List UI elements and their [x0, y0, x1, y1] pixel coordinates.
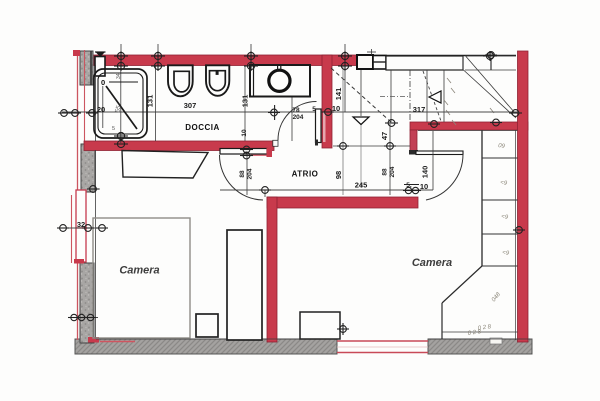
svg-text:131: 131 — [241, 95, 250, 108]
svg-text:307: 307 — [184, 101, 197, 110]
svg-text:204: 204 — [247, 168, 254, 179]
svg-text:20: 20 — [97, 105, 105, 114]
svg-text:34: 34 — [116, 73, 122, 79]
svg-text:88: 88 — [239, 170, 246, 178]
svg-text:0: 0 — [101, 78, 105, 87]
svg-text:10: 10 — [241, 129, 248, 137]
svg-text:204: 204 — [293, 114, 304, 121]
svg-text:5: 5 — [112, 126, 115, 132]
svg-text:DOCCIA: DOCCIA — [185, 123, 220, 132]
svg-text:245: 245 — [355, 181, 368, 190]
svg-text:98: 98 — [334, 171, 343, 179]
svg-text:Camera: Camera — [412, 257, 452, 269]
svg-text:317: 317 — [413, 105, 426, 114]
svg-text:78: 78 — [292, 107, 300, 114]
svg-text:140: 140 — [421, 166, 430, 179]
svg-text:131: 131 — [146, 95, 155, 108]
svg-text:88: 88 — [382, 168, 389, 176]
svg-text:10: 10 — [420, 182, 428, 191]
svg-text:141: 141 — [334, 88, 343, 101]
svg-text:5: 5 — [312, 106, 316, 113]
svg-text:204: 204 — [389, 166, 396, 177]
svg-text:ATRIO: ATRIO — [292, 170, 319, 179]
svg-text:Camera: Camera — [119, 265, 159, 277]
svg-text:47: 47 — [380, 132, 389, 140]
